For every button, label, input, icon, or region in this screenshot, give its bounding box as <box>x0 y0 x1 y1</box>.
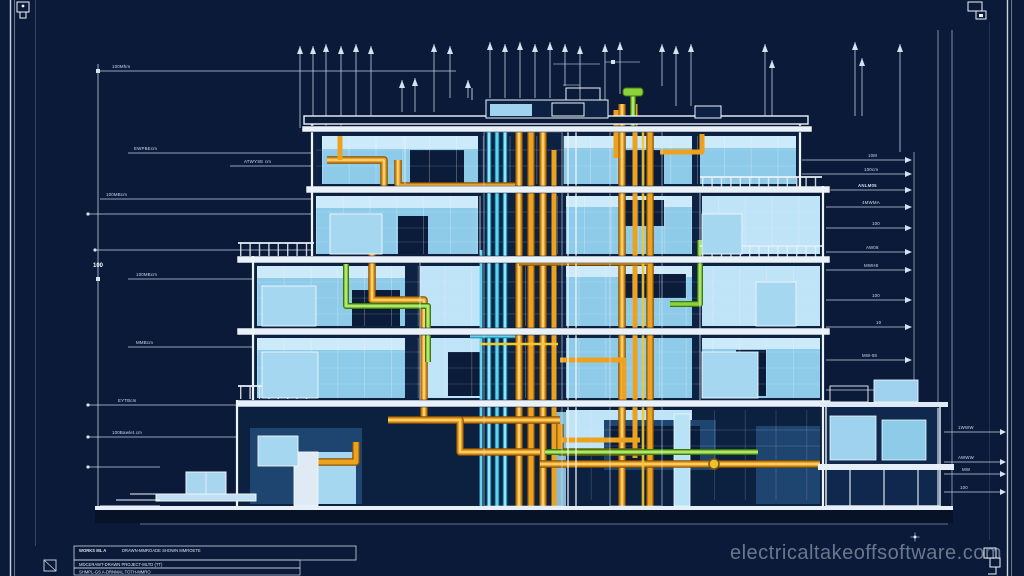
dimension-label: 100MBcm <box>106 192 127 197</box>
title-block-heading: WORKS ML A <box>79 548 106 553</box>
dimension-label: EYTBcm <box>118 398 137 403</box>
title-block-line: DRAWN-MMROADE SHOWN MMROETE <box>122 548 201 553</box>
dimension-label: AW08 <box>866 245 879 250</box>
dimension-label: 100MBcm <box>136 272 157 277</box>
duct-riser <box>674 414 690 506</box>
dimension-label: AWWW <box>958 455 975 460</box>
dimension-label: 1WWW <box>958 425 974 430</box>
watermark-text: electricaltakeoffsoftware.com <box>730 542 1002 565</box>
dimension-label: MW-08 <box>862 353 877 358</box>
blueprint-drawing: 100Mhm EWPBEcm ATWYSE cm 100MBcm 100MBcm… <box>0 0 1024 576</box>
title-block-line: MDCERAWT-DRAWN PROJECT-MLTD (TT) <box>79 562 163 567</box>
dimension-label: 10 <box>876 320 882 325</box>
dimension-label: 100Mhm <box>112 64 130 69</box>
dimension-label: MW <box>962 467 971 472</box>
dimension-label: MWH8 <box>864 263 879 268</box>
dimension-label: 100 <box>872 293 880 298</box>
dimension-label: ATWYSE cm <box>244 159 271 164</box>
green-stack-cap <box>623 88 643 96</box>
dimension-label: MMBcm <box>136 340 153 345</box>
dimension-label: 100 <box>960 485 968 490</box>
dimension-label: 10M <box>868 153 877 158</box>
blueprint-canvas: 100Mhm EWPBEcm ATWYSE cm 100MBcm 100MBcm… <box>0 0 1024 576</box>
dimension-label: EWPBEcm <box>134 146 157 151</box>
dimension-label: 100cm <box>864 167 878 172</box>
dimension-label: ANLM05 <box>858 183 877 188</box>
dimension-label: 100Bawlet.cm <box>112 430 142 435</box>
yellow-valve-marker <box>709 459 719 469</box>
elevation-mark: 100 <box>93 263 104 269</box>
dimension-label: 100 <box>872 221 880 226</box>
title-block-line: SHMPL-GS A-DRNMAL TOTH-MMRO <box>79 570 151 575</box>
dimension-label: 4MWMA <box>862 200 880 205</box>
